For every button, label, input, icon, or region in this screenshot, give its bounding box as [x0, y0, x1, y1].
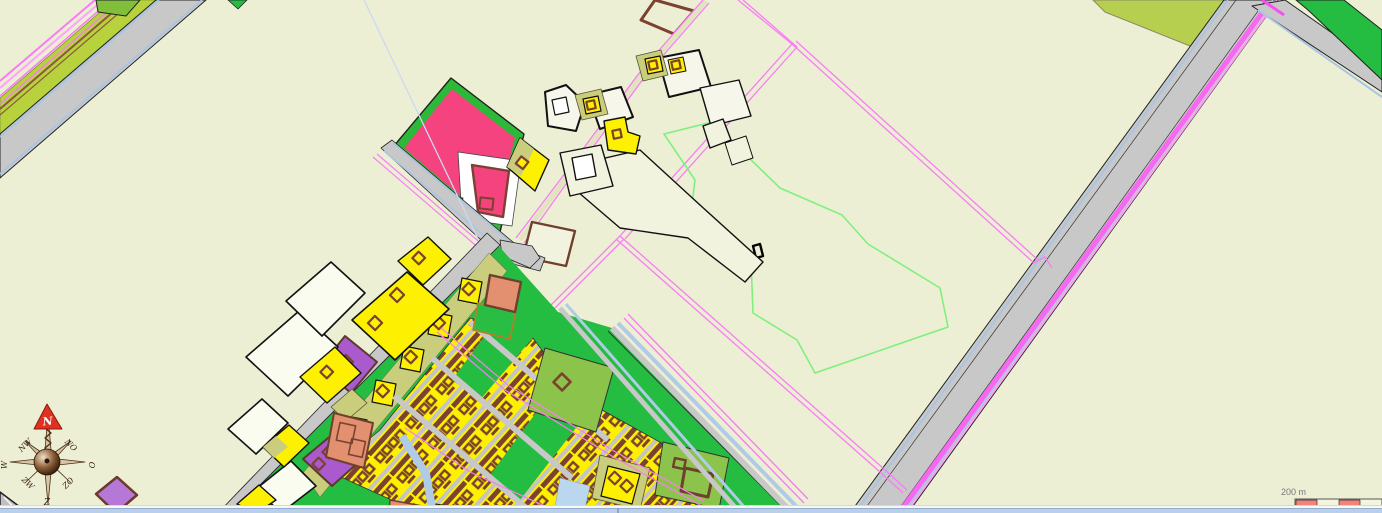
compass-label-w: W — [0, 460, 9, 469]
building-brown — [681, 468, 713, 497]
house-icon — [671, 60, 680, 69]
building-outline — [572, 154, 596, 180]
map-canvas[interactable]: NNWNOWOZWZOZ200 m — [0, 0, 1382, 513]
window-bottom-scrollbar[interactable] — [0, 508, 1382, 513]
house-icon — [612, 129, 621, 138]
compass-sphere-dot — [45, 459, 50, 464]
map-viewport[interactable]: NNWNOWOZWZOZ200 m — [0, 0, 1382, 513]
building-salmon — [326, 413, 373, 468]
house-icon — [648, 60, 657, 69]
scale-bar-label: 200 m — [1281, 487, 1306, 497]
building-outline — [552, 97, 569, 115]
scrollbar-tick — [617, 508, 619, 513]
building-salmon — [485, 275, 521, 312]
compass-label-o: O — [87, 462, 96, 469]
map-features-layer: NNWNOWOZWZOZ200 m — [0, 0, 1382, 513]
house-icon — [586, 100, 595, 109]
